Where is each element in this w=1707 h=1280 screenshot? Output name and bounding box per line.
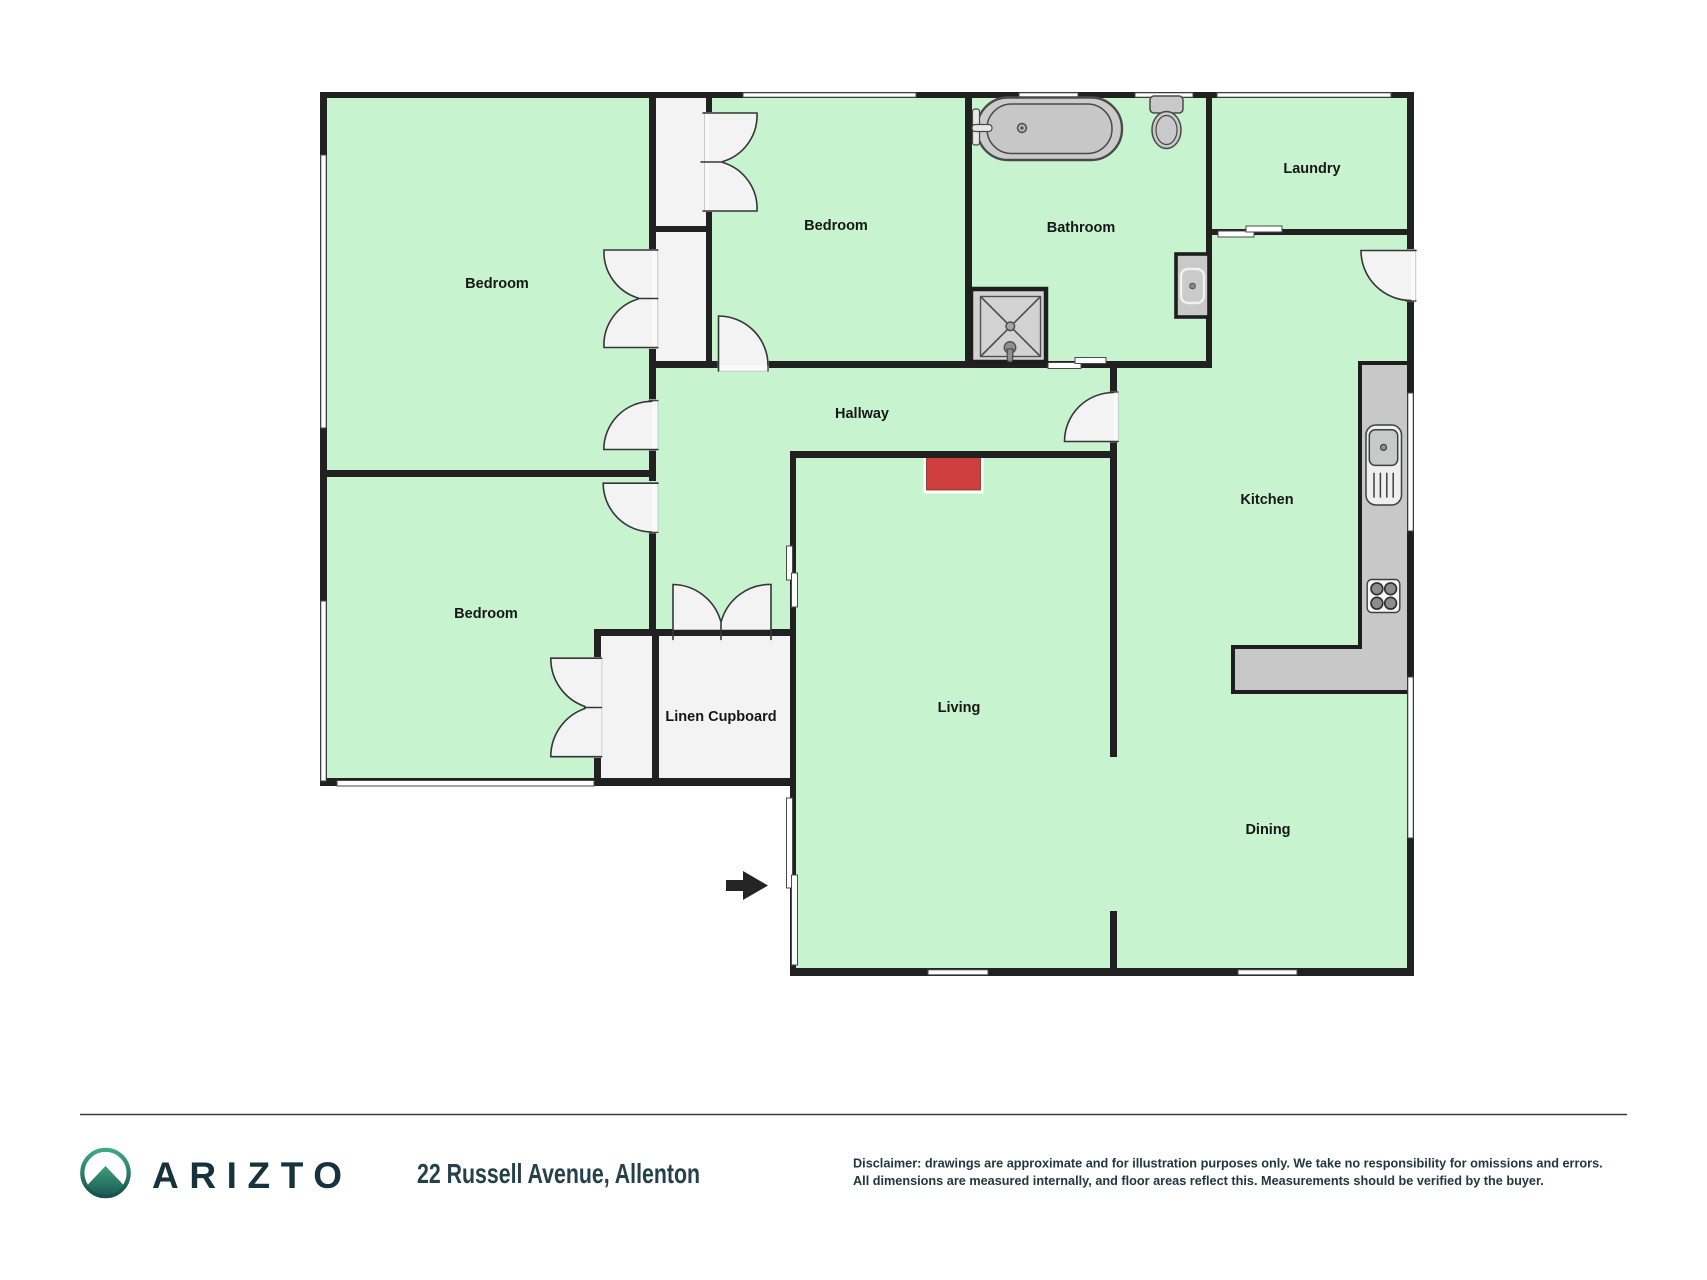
svg-text:22 Russell Avenue, Allenton: 22 Russell Avenue, Allenton: [417, 1158, 700, 1189]
svg-text:Bedroom: Bedroom: [454, 606, 518, 622]
svg-text:Disclaimer: drawings are appro: Disclaimer: drawings are approximate and…: [853, 1157, 1603, 1171]
svg-text:All dimensions are measured in: All dimensions are measured internally, …: [853, 1174, 1544, 1188]
svg-text:Laundry: Laundry: [1283, 161, 1340, 177]
svg-text:Hallway: Hallway: [835, 406, 889, 422]
svg-text:Dining: Dining: [1245, 822, 1290, 838]
svg-text:Bedroom: Bedroom: [804, 218, 868, 234]
svg-text:ARIZTO: ARIZTO: [152, 1155, 353, 1196]
svg-text:Living: Living: [938, 700, 981, 716]
svg-text:Bathroom: Bathroom: [1047, 220, 1115, 236]
svg-text:Bedroom: Bedroom: [465, 276, 529, 292]
svg-text:Linen Cupboard: Linen Cupboard: [665, 709, 776, 725]
svg-text:Kitchen: Kitchen: [1240, 492, 1293, 508]
